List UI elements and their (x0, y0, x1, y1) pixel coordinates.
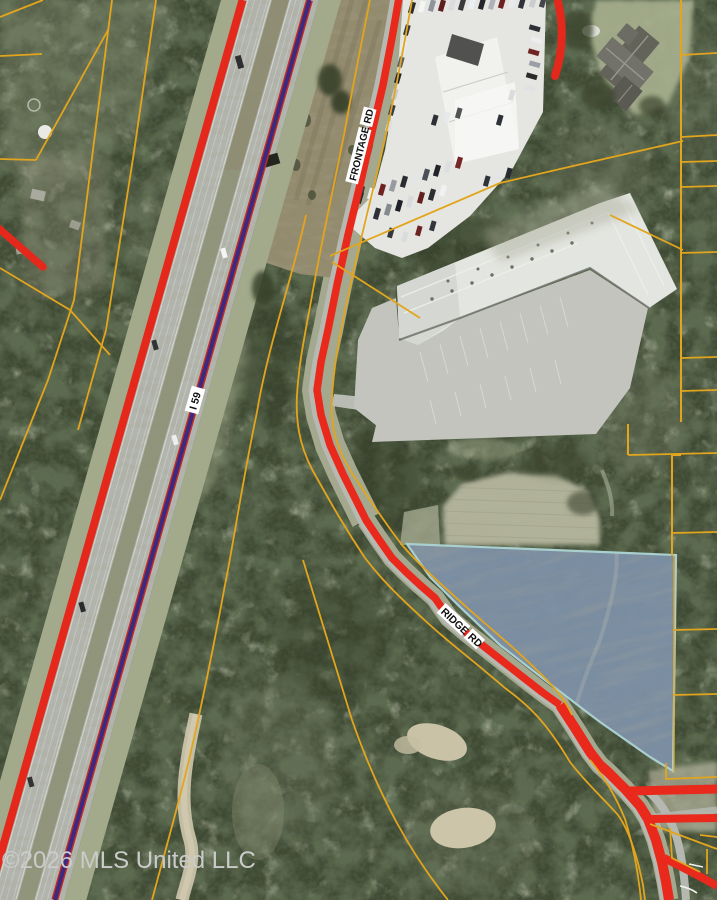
svg-text:©2026 MLS United LLC: ©2026 MLS United LLC (2, 847, 256, 874)
